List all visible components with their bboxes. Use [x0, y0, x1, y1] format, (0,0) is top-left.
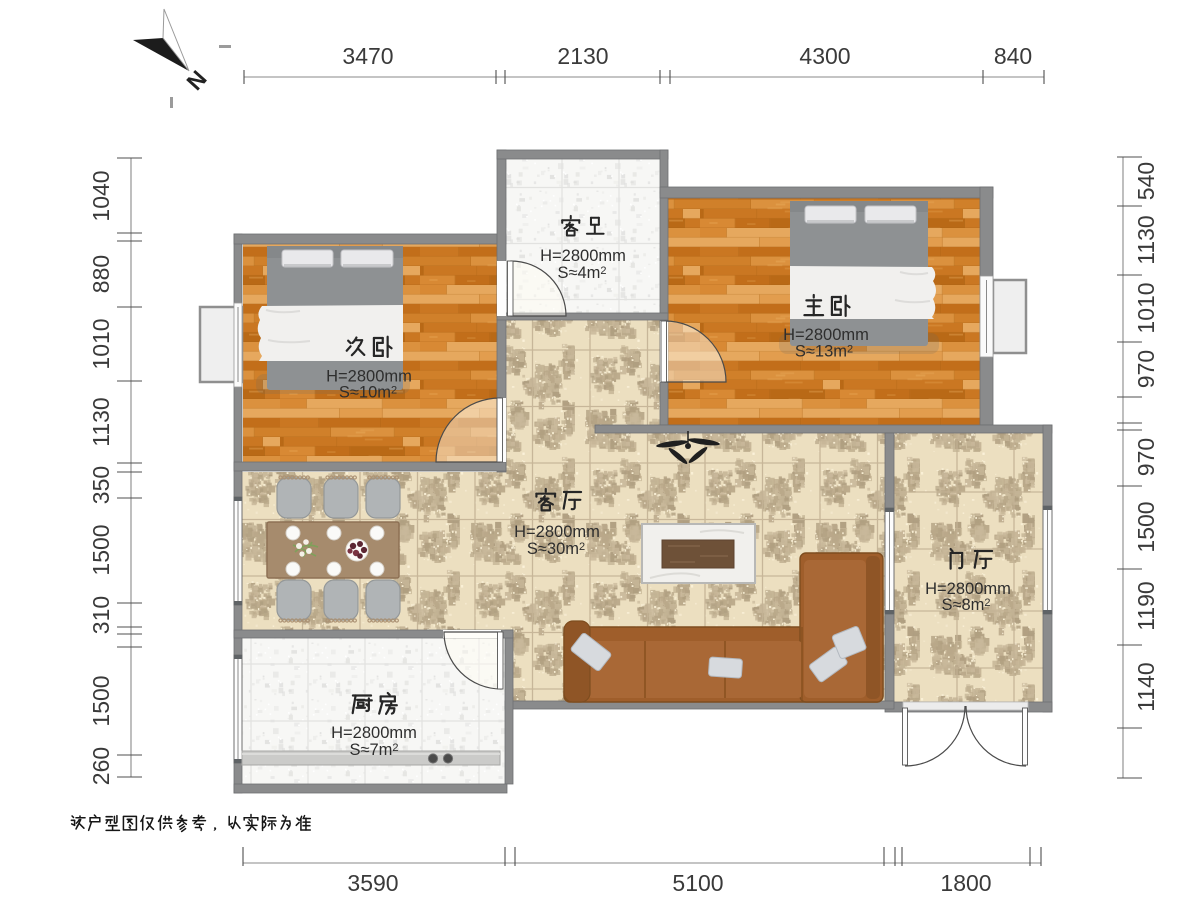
- svg-text:1140: 1140: [1133, 662, 1159, 711]
- svg-text:540: 540: [1133, 162, 1159, 200]
- svg-text:1800: 1800: [940, 870, 991, 896]
- svg-text:5100: 5100: [672, 870, 723, 896]
- svg-text:S≈7m2: S≈7m2: [349, 741, 398, 759]
- svg-text:3470: 3470: [342, 43, 393, 69]
- svg-text:310: 310: [88, 596, 114, 634]
- svg-text:970: 970: [1133, 350, 1159, 388]
- svg-text:4300: 4300: [799, 43, 850, 69]
- svg-text:H=2800mm: H=2800mm: [540, 247, 626, 265]
- svg-text:S≈8m2: S≈8m2: [941, 596, 990, 614]
- svg-text:1500: 1500: [88, 675, 114, 726]
- svg-text:3590: 3590: [347, 870, 398, 896]
- svg-text:H=2800mm: H=2800mm: [514, 523, 600, 541]
- svg-text:840: 840: [994, 43, 1032, 69]
- svg-text:880: 880: [88, 255, 114, 293]
- svg-text:1040: 1040: [88, 170, 114, 221]
- svg-text:1190: 1190: [1133, 581, 1159, 630]
- svg-text:1500: 1500: [88, 524, 114, 575]
- svg-text:S≈4m2: S≈4m2: [557, 264, 606, 282]
- svg-text:2130: 2130: [557, 43, 608, 69]
- svg-text:S≈30m2: S≈30m2: [527, 540, 585, 558]
- svg-text:1010: 1010: [88, 318, 114, 369]
- svg-text:S≈13m2: S≈13m2: [795, 343, 853, 361]
- svg-text:1130: 1130: [88, 397, 114, 446]
- svg-text:1500: 1500: [1133, 501, 1159, 552]
- svg-text:H=2800mm: H=2800mm: [331, 724, 417, 742]
- svg-text:S≈10m2: S≈10m2: [339, 384, 397, 402]
- svg-text:350: 350: [88, 466, 114, 504]
- svg-text:1130: 1130: [1133, 215, 1159, 264]
- svg-text:H=2800mm: H=2800mm: [783, 326, 869, 344]
- svg-text:970: 970: [1133, 438, 1159, 476]
- svg-text:1010: 1010: [1133, 282, 1159, 333]
- svg-text:260: 260: [88, 747, 114, 785]
